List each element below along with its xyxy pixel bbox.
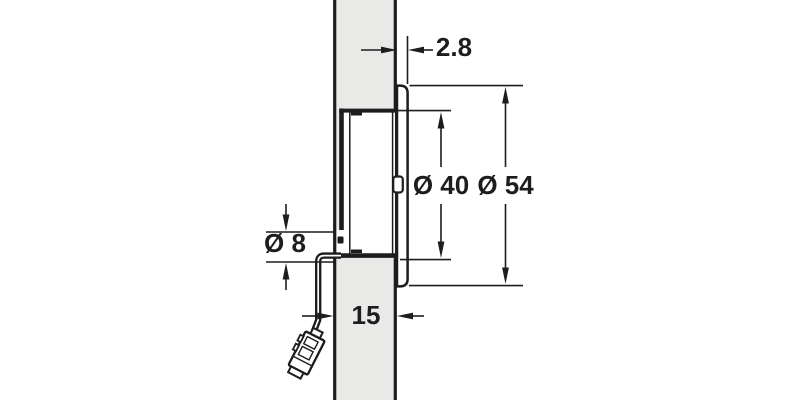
dimension-cable-diameter: Ø 8 (264, 204, 334, 290)
recess-cavity (344, 109, 396, 258)
dim-label-recess-diameter: Ø 40 (413, 170, 469, 200)
spring-clip-top (351, 112, 362, 116)
arrow-down-icon (502, 268, 509, 285)
mounting-clip (393, 177, 403, 193)
arrow-up-icon (502, 87, 509, 104)
cable-cross-section (338, 237, 344, 244)
dim-label-cable-diameter: Ø 8 (264, 228, 306, 258)
recess-housing (337, 109, 397, 259)
dim-label-flange-diameter: Ø 54 (477, 170, 534, 200)
arrow-up-icon (438, 112, 445, 129)
arrow-right-icon (318, 313, 334, 320)
drawing-canvas: 2.8 Ø 40 Ø 54 Ø 8 15 (0, 0, 800, 400)
spring-clip-bottom (351, 250, 362, 254)
dim-label-panel-thickness: 15 (352, 300, 381, 330)
dim-label-flange-offset: 2.8 (436, 32, 472, 62)
technical-drawing: 2.8 Ø 40 Ø 54 Ø 8 15 (0, 0, 800, 400)
arrow-left-icon (408, 47, 424, 54)
plug-connector (283, 324, 328, 381)
arrow-up-icon (283, 263, 290, 280)
arrow-down-icon (438, 242, 445, 259)
arrow-left-icon (397, 313, 413, 320)
